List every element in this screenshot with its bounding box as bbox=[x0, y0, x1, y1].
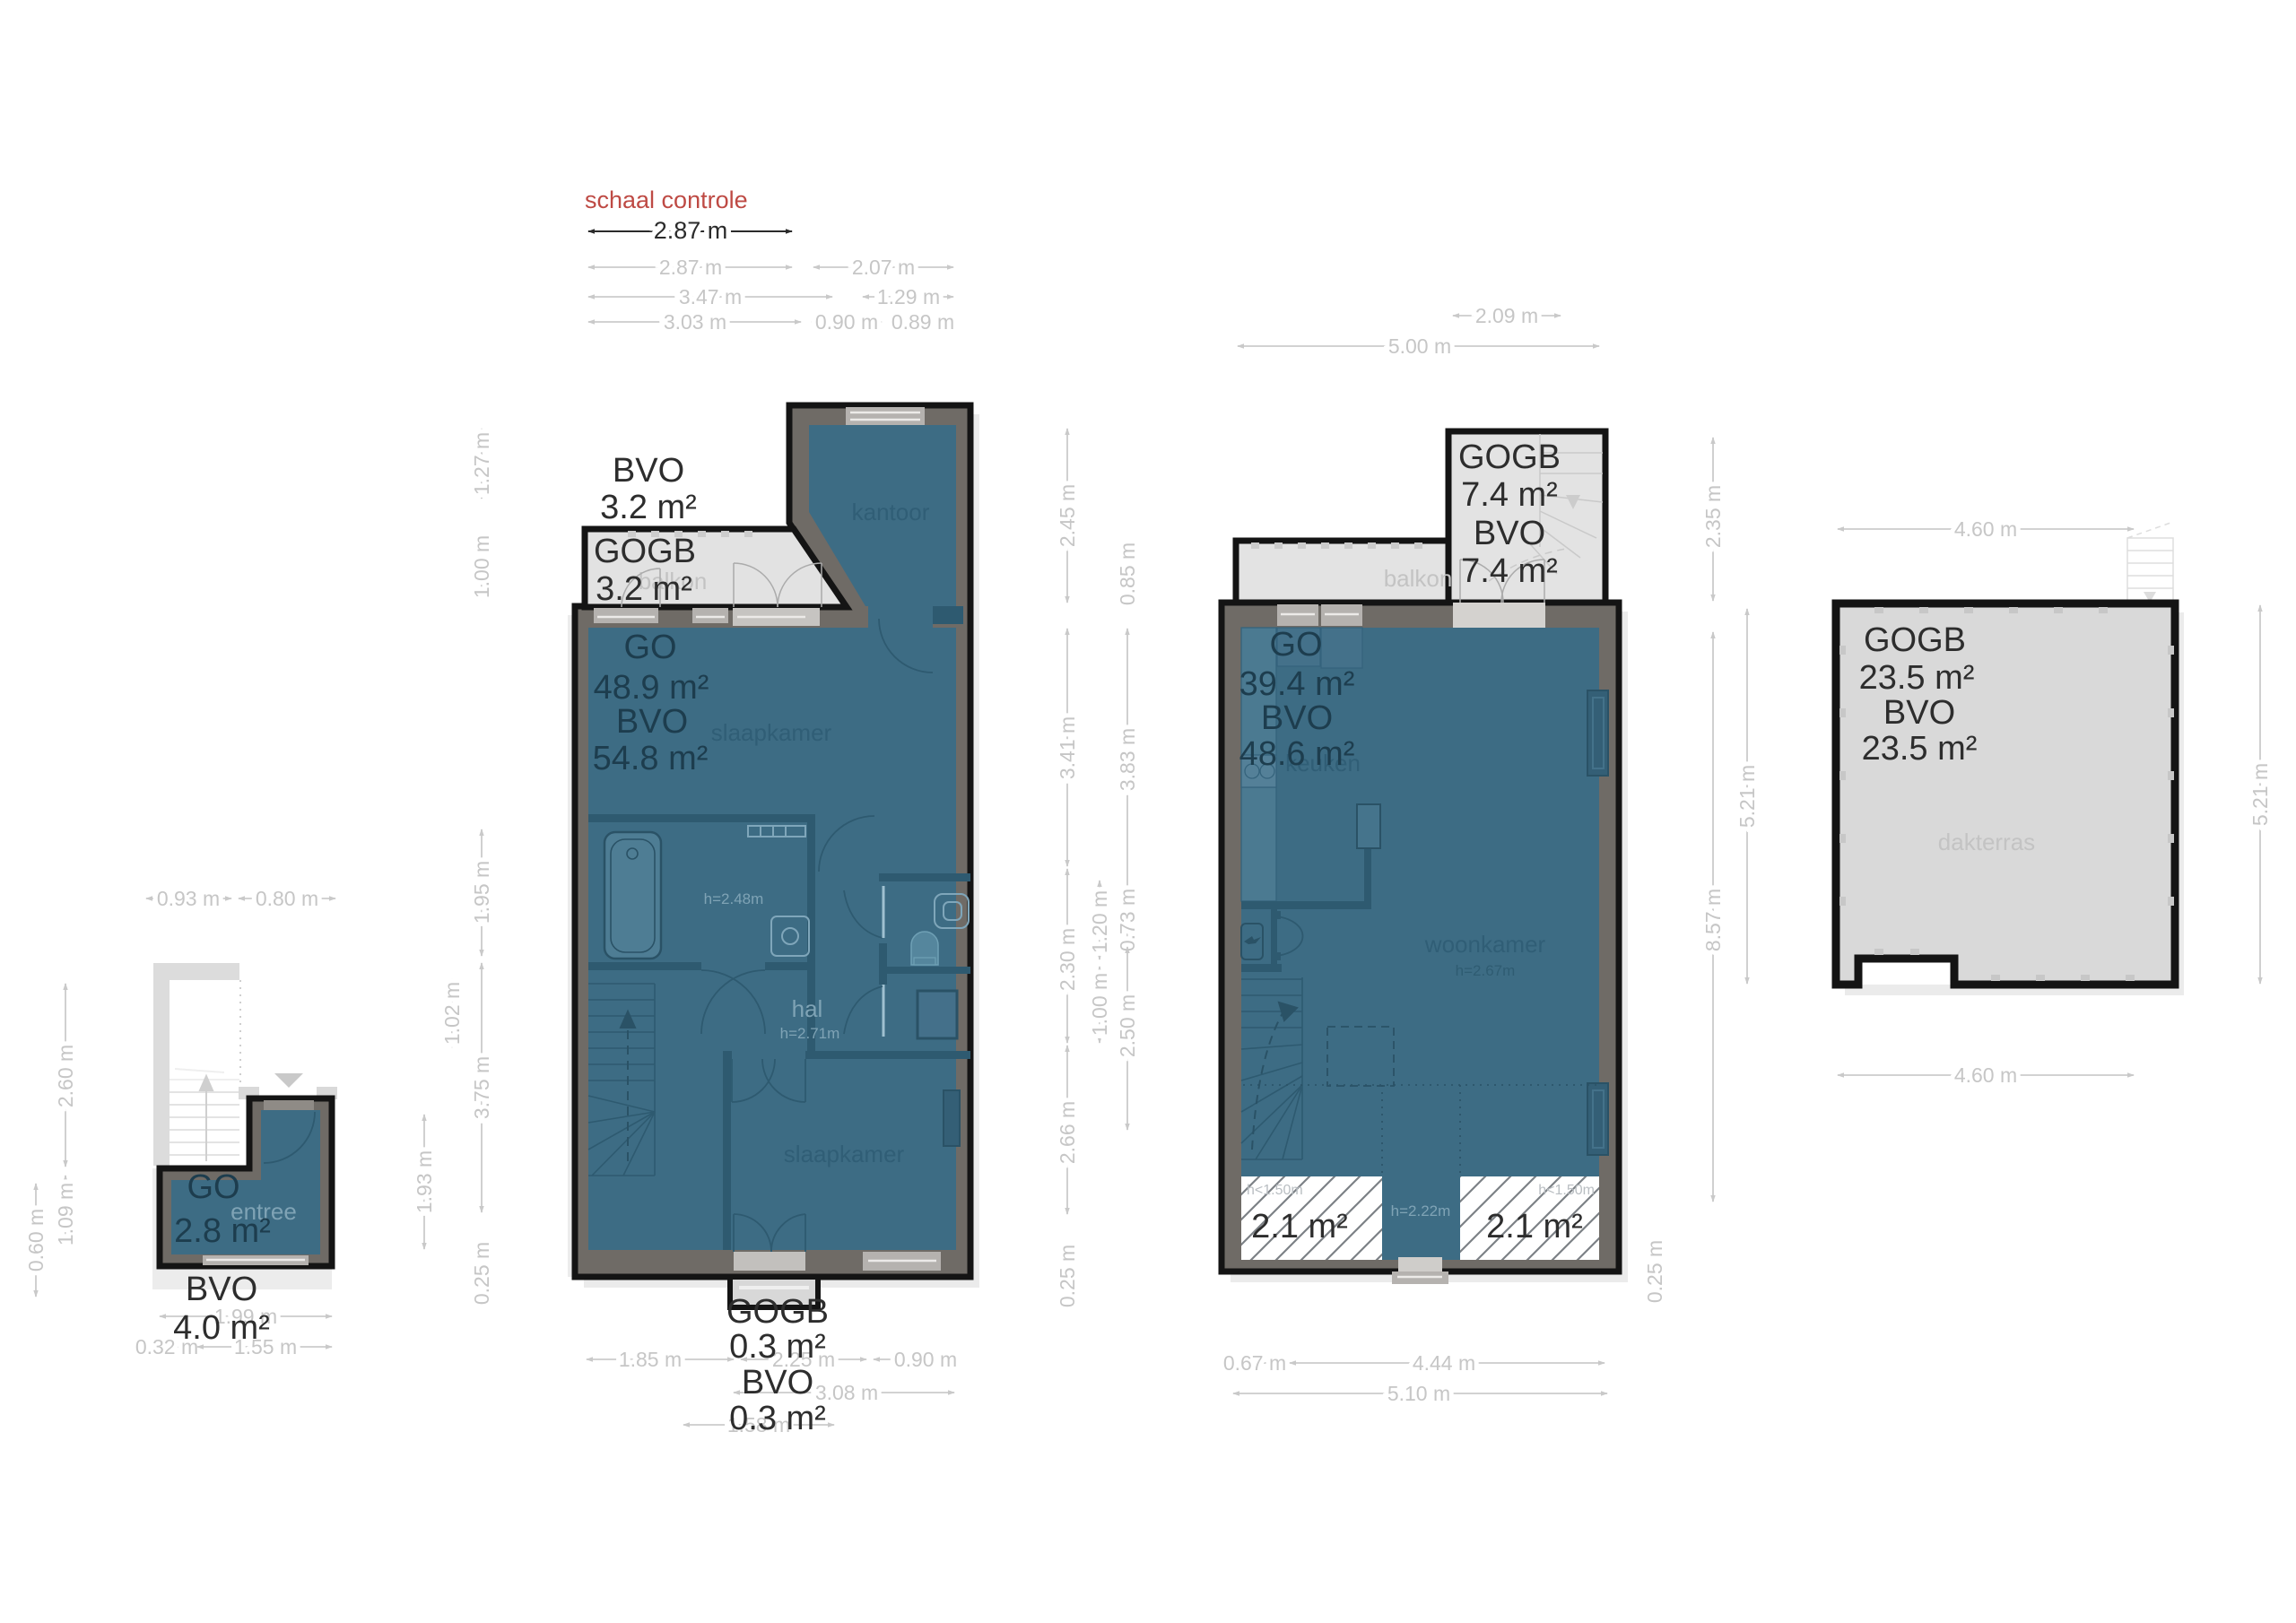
svg-text:5.00 m: 5.00 m bbox=[1388, 334, 1451, 358]
svg-text:1.02 m: 1.02 m bbox=[440, 982, 464, 1045]
svg-text:23.5 m²: 23.5 m² bbox=[1859, 659, 1975, 697]
svg-text:4.60 m: 4.60 m bbox=[1954, 517, 2017, 541]
svg-text:1.00 m: 1.00 m bbox=[470, 535, 493, 598]
svg-text:BVO: BVO bbox=[1474, 515, 1545, 552]
svg-text:1.93 m: 1.93 m bbox=[413, 1150, 436, 1213]
svg-text:0.90 m: 0.90 m bbox=[894, 1348, 957, 1371]
svg-text:0.25 m: 0.25 m bbox=[1056, 1245, 1079, 1307]
svg-text:48.6 m²: 48.6 m² bbox=[1239, 735, 1355, 773]
svg-text:0.93 m: 0.93 m bbox=[157, 887, 220, 910]
svg-text:woonkamer: woonkamer bbox=[1424, 931, 1546, 958]
svg-text:2.1 m²: 2.1 m² bbox=[1251, 1208, 1348, 1245]
svg-text:0.67 m: 0.67 m bbox=[1223, 1351, 1286, 1375]
svg-text:1.29 m: 1.29 m bbox=[877, 285, 940, 308]
svg-text:2.66 m: 2.66 m bbox=[1056, 1101, 1079, 1164]
svg-text:7.4 m²: 7.4 m² bbox=[1461, 476, 1558, 514]
svg-text:5.10 m: 5.10 m bbox=[1387, 1382, 1450, 1405]
svg-text:GO: GO bbox=[187, 1168, 239, 1206]
svg-text:5.21 m: 5.21 m bbox=[2248, 763, 2272, 826]
svg-text:0.25 m: 0.25 m bbox=[470, 1242, 493, 1305]
svg-text:GO: GO bbox=[1269, 626, 1322, 664]
svg-text:slaapkamer: slaapkamer bbox=[784, 1141, 905, 1167]
svg-text:2.8 m²: 2.8 m² bbox=[174, 1212, 271, 1250]
svg-text:2.45 m: 2.45 m bbox=[1056, 484, 1079, 547]
svg-text:1.00 m: 1.00 m bbox=[1088, 973, 1111, 1036]
svg-text:GO: GO bbox=[623, 629, 676, 666]
svg-text:h<1.50m: h<1.50m bbox=[1538, 1183, 1595, 1198]
svg-text:23.5 m²: 23.5 m² bbox=[1862, 730, 1978, 768]
svg-text:48.9 m²: 48.9 m² bbox=[594, 669, 709, 707]
svg-text:0.73 m: 0.73 m bbox=[1116, 889, 1139, 951]
svg-text:BVO: BVO bbox=[186, 1271, 257, 1308]
svg-text:2.87 m: 2.87 m bbox=[659, 256, 722, 279]
svg-text:7.4 m²: 7.4 m² bbox=[1461, 552, 1558, 590]
svg-text:0.85 m: 0.85 m bbox=[1116, 542, 1139, 605]
svg-text:2.60 m: 2.60 m bbox=[54, 1045, 77, 1107]
svg-text:2.07 m: 2.07 m bbox=[852, 256, 915, 279]
svg-text:0.25 m: 0.25 m bbox=[1643, 1240, 1666, 1303]
svg-text:2.30 m: 2.30 m bbox=[1056, 928, 1079, 991]
svg-text:h=2.48m: h=2.48m bbox=[704, 890, 764, 907]
svg-text:3.47 m: 3.47 m bbox=[679, 285, 742, 308]
svg-text:1.95 m: 1.95 m bbox=[470, 861, 493, 924]
svg-text:2.1 m²: 2.1 m² bbox=[1486, 1208, 1583, 1245]
svg-text:h=2.22m: h=2.22m bbox=[1391, 1202, 1451, 1219]
svg-text:0.60 m: 0.60 m bbox=[24, 1209, 48, 1271]
svg-text:BVO: BVO bbox=[613, 452, 684, 490]
svg-text:1.09 m: 1.09 m bbox=[54, 1183, 77, 1245]
svg-text:1.20 m: 1.20 m bbox=[1088, 890, 1111, 953]
svg-text:3.41 m: 3.41 m bbox=[1056, 716, 1079, 779]
svg-text:3.83 m: 3.83 m bbox=[1116, 728, 1139, 791]
svg-text:3.03 m: 3.03 m bbox=[664, 310, 726, 334]
svg-text:1.85 m: 1.85 m bbox=[619, 1348, 682, 1371]
svg-text:2.09 m: 2.09 m bbox=[1475, 304, 1538, 327]
svg-text:5.21 m: 5.21 m bbox=[1735, 765, 1759, 828]
svg-text:h<1.50m: h<1.50m bbox=[1247, 1183, 1303, 1198]
svg-text:0.3 m²: 0.3 m² bbox=[729, 1328, 826, 1366]
svg-text:schaal controle: schaal controle bbox=[585, 187, 748, 213]
svg-text:h=2.67m: h=2.67m bbox=[1456, 962, 1516, 979]
svg-text:kantoor: kantoor bbox=[852, 499, 930, 525]
svg-text:4.44 m: 4.44 m bbox=[1413, 1351, 1475, 1375]
svg-text:GOGB: GOGB bbox=[1458, 438, 1561, 476]
svg-text:GOGB: GOGB bbox=[1864, 621, 1966, 659]
svg-text:8.57 m: 8.57 m bbox=[1701, 889, 1725, 951]
svg-text:dakterras: dakterras bbox=[1938, 829, 2035, 855]
svg-text:slaapkamer: slaapkamer bbox=[711, 719, 832, 746]
svg-text:GOGB: GOGB bbox=[594, 533, 696, 570]
svg-text:1.27 m: 1.27 m bbox=[470, 432, 493, 495]
svg-text:4.60 m: 4.60 m bbox=[1954, 1063, 2017, 1087]
svg-text:0.3 m²: 0.3 m² bbox=[729, 1400, 826, 1437]
svg-text:39.4 m²: 39.4 m² bbox=[1239, 665, 1355, 703]
svg-text:3.2 m²: 3.2 m² bbox=[600, 489, 697, 526]
svg-text:0.90 m: 0.90 m bbox=[815, 310, 878, 334]
svg-text:2.87 m: 2.87 m bbox=[654, 217, 728, 244]
svg-text:h=2.71m: h=2.71m bbox=[780, 1025, 840, 1042]
svg-text:2.50 m: 2.50 m bbox=[1116, 994, 1139, 1057]
svg-text:3.2 m²: 3.2 m² bbox=[596, 570, 692, 608]
svg-text:0.80 m: 0.80 m bbox=[256, 887, 318, 910]
svg-text:BVO: BVO bbox=[1883, 694, 1955, 732]
svg-text:hal: hal bbox=[792, 995, 823, 1022]
svg-text:BVO: BVO bbox=[1261, 699, 1333, 737]
svg-text:GOGB: GOGB bbox=[726, 1293, 829, 1331]
svg-text:balkon: balkon bbox=[1384, 565, 1453, 592]
svg-text:BVO: BVO bbox=[616, 703, 688, 741]
svg-text:BVO: BVO bbox=[742, 1364, 813, 1402]
svg-text:4.0 m²: 4.0 m² bbox=[173, 1309, 270, 1347]
svg-text:0.89 m: 0.89 m bbox=[891, 310, 954, 334]
svg-text:54.8 m²: 54.8 m² bbox=[593, 740, 709, 777]
svg-text:3.75 m: 3.75 m bbox=[470, 1056, 493, 1119]
svg-text:2.35 m: 2.35 m bbox=[1701, 485, 1725, 548]
